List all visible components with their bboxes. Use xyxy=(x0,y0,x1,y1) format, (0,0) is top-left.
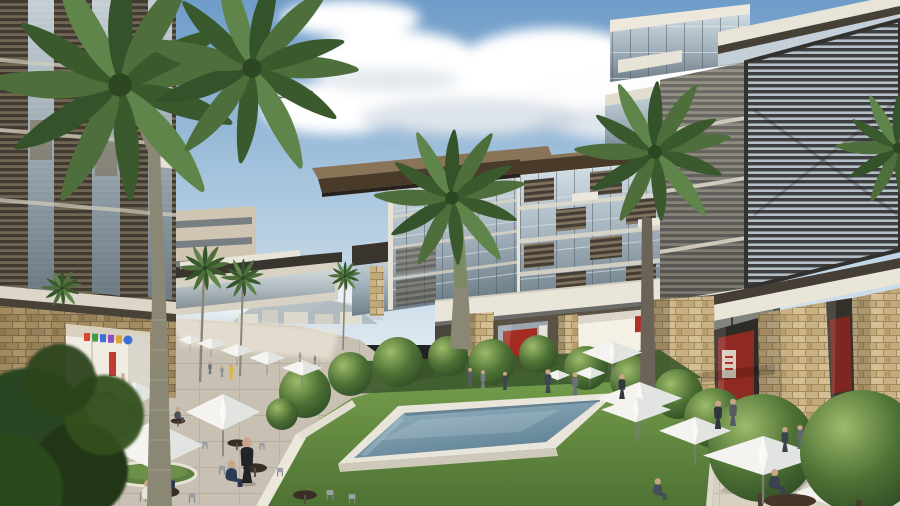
rendering-stage: Mixed-use plaza architectural rendering xyxy=(0,0,900,506)
right-building-louver-screen xyxy=(746,20,900,288)
balloon-icon xyxy=(124,336,133,345)
red-banner xyxy=(109,352,116,376)
architectural-rendering: Mixed-use plaza architectural rendering xyxy=(0,0,900,506)
